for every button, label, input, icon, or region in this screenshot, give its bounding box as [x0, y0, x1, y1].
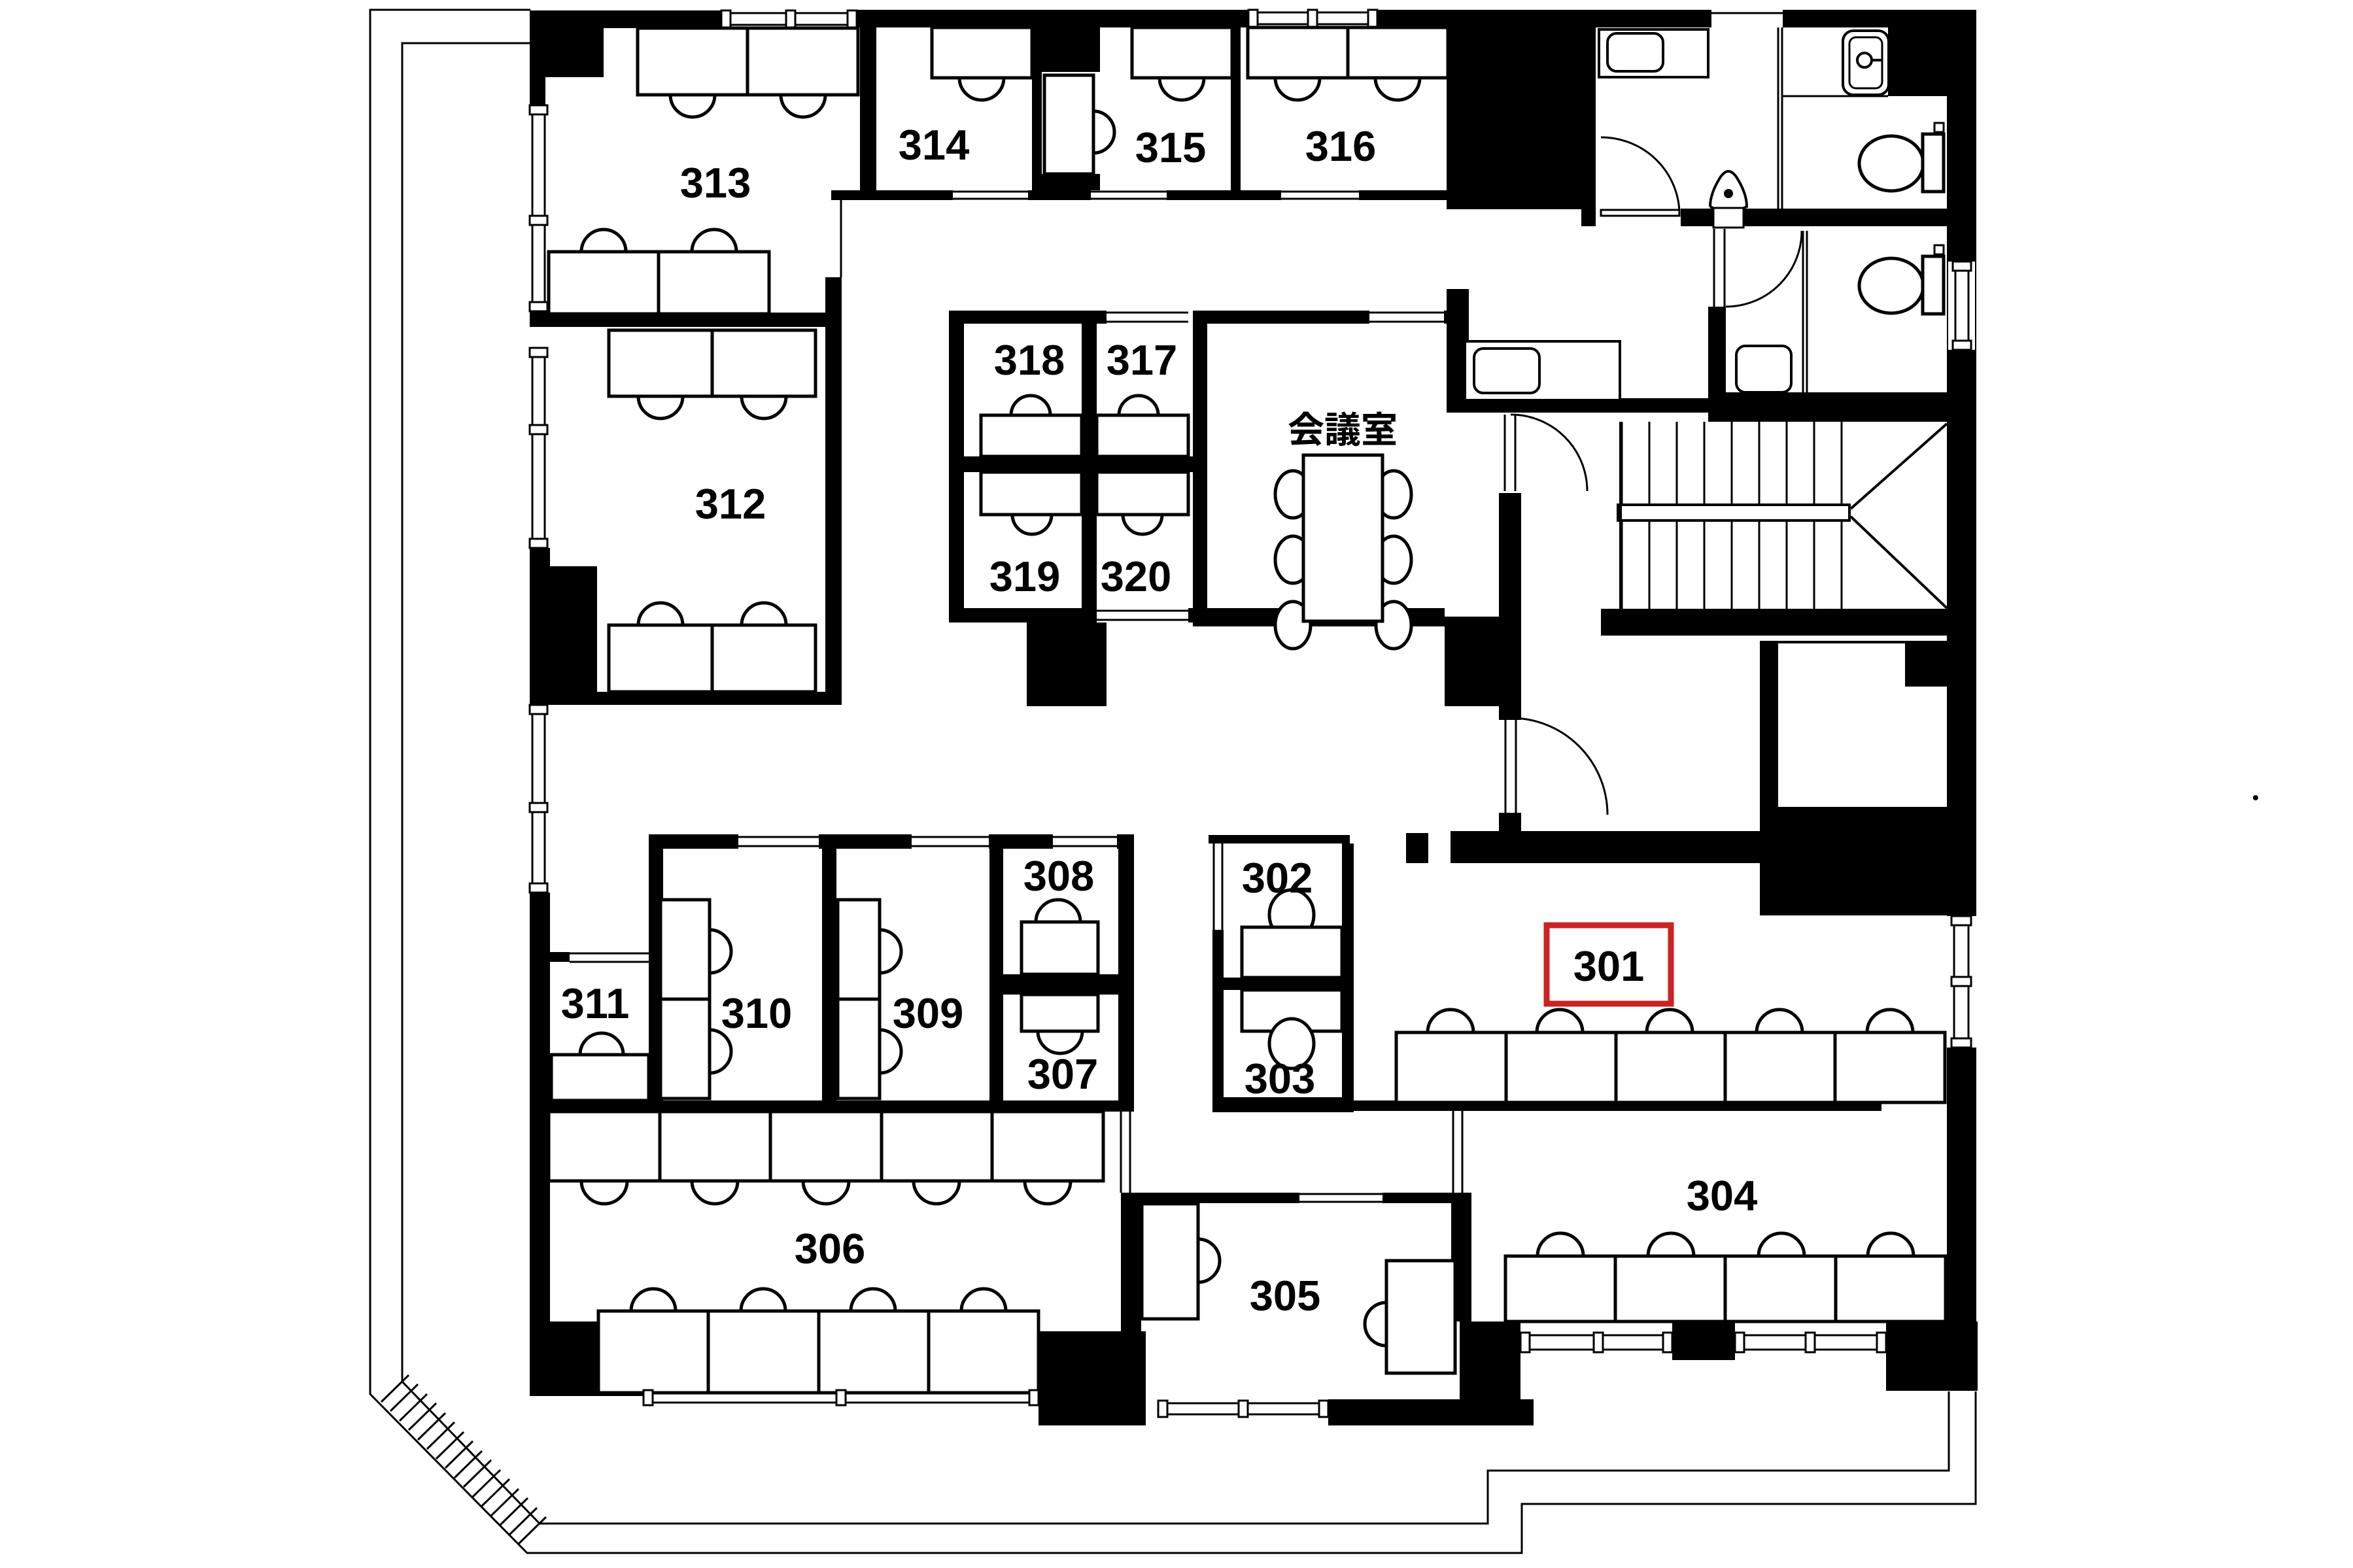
svg-text:317: 317 [1107, 336, 1177, 384]
svg-text:316: 316 [1305, 122, 1376, 170]
svg-text:320: 320 [1101, 553, 1171, 600]
svg-text:315: 315 [1135, 124, 1206, 171]
svg-text:310: 310 [721, 989, 792, 1037]
svg-text:311: 311 [561, 980, 630, 1027]
svg-text:306: 306 [795, 1225, 865, 1272]
svg-text:314: 314 [899, 121, 969, 169]
svg-text:307: 307 [1027, 1050, 1098, 1098]
svg-text:301: 301 [1573, 942, 1644, 990]
svg-text:308: 308 [1023, 852, 1094, 900]
svg-text:305: 305 [1250, 1272, 1320, 1320]
svg-text:302: 302 [1242, 854, 1313, 902]
svg-text:313: 313 [680, 159, 751, 207]
svg-text:318: 318 [994, 336, 1065, 384]
svg-text:312: 312 [695, 480, 766, 528]
svg-text:319: 319 [989, 553, 1060, 600]
svg-text:304: 304 [1687, 1172, 1757, 1219]
svg-text:303: 303 [1245, 1055, 1315, 1102]
svg-text:309: 309 [893, 989, 963, 1037]
